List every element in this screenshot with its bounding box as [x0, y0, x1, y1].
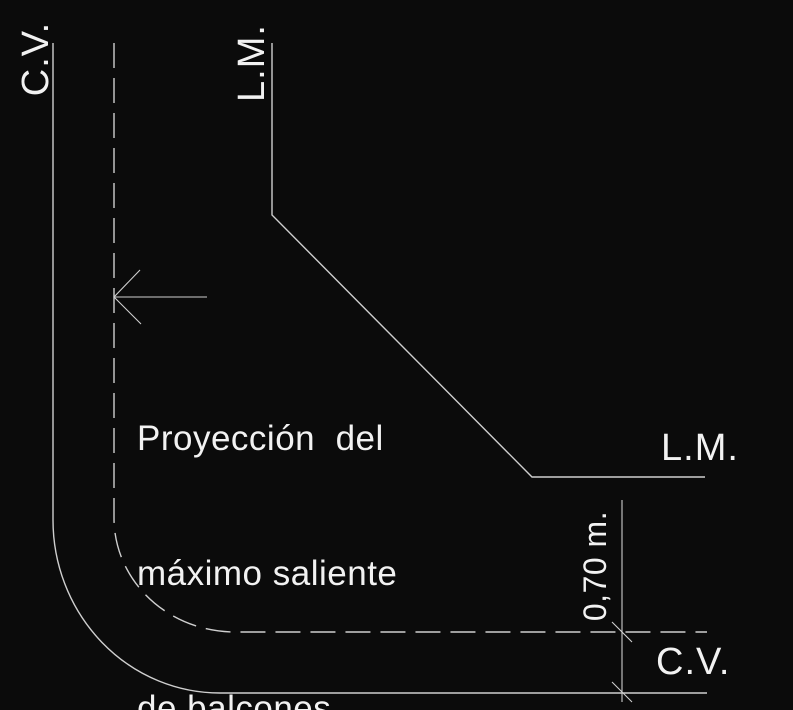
dimension-value-label: 0,70 m. — [578, 504, 612, 628]
dimension — [612, 500, 632, 702]
annotation-line-3: de balcones — [137, 686, 397, 710]
leader-arrow — [114, 270, 207, 324]
curb-line-label-top: C.V. — [16, 17, 56, 101]
annotation-line-2: máximo saliente — [137, 551, 397, 596]
balcony-projection-annotation: Proyección del máximo saliente de balcon… — [137, 326, 397, 710]
drawing-canvas: C.V. L.M. 0,70 m. L.M. C.V. Proyección d… — [0, 0, 793, 710]
municipal-line-label-right: L.M. — [661, 428, 739, 468]
municipal-line-label-top: L.M. — [232, 21, 272, 105]
curb-line-label-bottom: C.V. — [656, 642, 730, 682]
annotation-line-1: Proyección del — [137, 416, 397, 461]
